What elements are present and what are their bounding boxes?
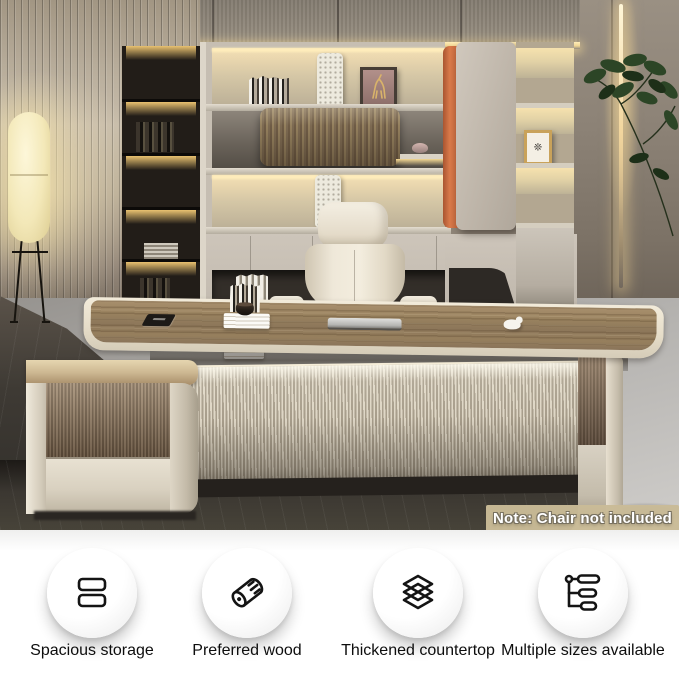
office-scene-photo: ❊ (0, 0, 679, 530)
walnut-fluted-cabinet (260, 108, 400, 166)
feature-multiple-sizes: Multiple sizes available (493, 530, 673, 679)
return-cabinet-base-shadow (34, 511, 196, 520)
desk-top (83, 297, 664, 359)
feature-badge (47, 548, 137, 638)
layers-icon (394, 569, 442, 617)
desk-right-leg-side (606, 356, 623, 516)
cabinet-seam (337, 0, 339, 44)
bird-figurine (504, 319, 521, 329)
lamp-crossbar (12, 251, 48, 253)
lamp-shade-seam (10, 174, 48, 176)
recessed-shelf-row2 (212, 111, 445, 168)
feature-preferred-wood: Preferred wood (157, 530, 337, 679)
feature-label: Multiple sizes available (501, 642, 665, 660)
feature-badge (538, 548, 628, 638)
tall-cabinet-door (456, 42, 516, 230)
feature-thickened-countertop: Thickened countertop (328, 530, 508, 679)
picture-frame-decor (360, 67, 397, 108)
return-cabinet-drawer (46, 457, 174, 514)
chair-seam (354, 250, 355, 306)
lamp-foot (10, 321, 18, 323)
return-cabinet-corner (170, 383, 198, 514)
feature-strip: Spacious storage Preferred wood (0, 530, 679, 679)
cabinet-seam (460, 0, 462, 44)
size-options-icon (559, 569, 607, 617)
book-stack-on-desk (224, 313, 270, 329)
feature-spacious-storage: Spacious storage (2, 530, 182, 679)
plant (583, 46, 679, 246)
dark-bookshelf-column (122, 46, 200, 308)
return-cabinet-ribbed-front (46, 383, 174, 457)
note-badge: Note: Chair not included (486, 505, 679, 530)
feature-badge (202, 548, 292, 638)
drawers-icon (68, 569, 116, 617)
return-cabinet-side (26, 383, 48, 514)
bowl-decor (412, 143, 428, 153)
product-image: ❊ (0, 0, 679, 679)
feature-label: Preferred wood (192, 642, 301, 660)
feature-badge (373, 548, 463, 638)
backlit-shelf-row1 (212, 48, 445, 104)
feature-label: Thickened countertop (341, 642, 495, 660)
perforated-divider (317, 53, 343, 109)
return-cabinet-top (26, 360, 198, 385)
office-chair-headrest (318, 202, 388, 248)
gold-picture-frame: ❊ (524, 130, 552, 165)
note-text: Note: Chair not included (493, 510, 672, 527)
floor-lamp-shade (8, 112, 50, 243)
upper-cabinet-band (183, 0, 580, 46)
wood-log-icon (223, 569, 271, 617)
laptop (328, 318, 402, 331)
display-niche-column: ❊ (516, 42, 574, 310)
lamp-foot (42, 321, 50, 323)
shelf-board (206, 168, 451, 175)
cabinet-seam (212, 0, 214, 44)
feature-label: Spacious storage (30, 642, 154, 660)
desk-ribbed-front-panel (189, 361, 582, 484)
cup-ornament (236, 302, 254, 315)
desk-right-leg-walnut (578, 357, 608, 447)
